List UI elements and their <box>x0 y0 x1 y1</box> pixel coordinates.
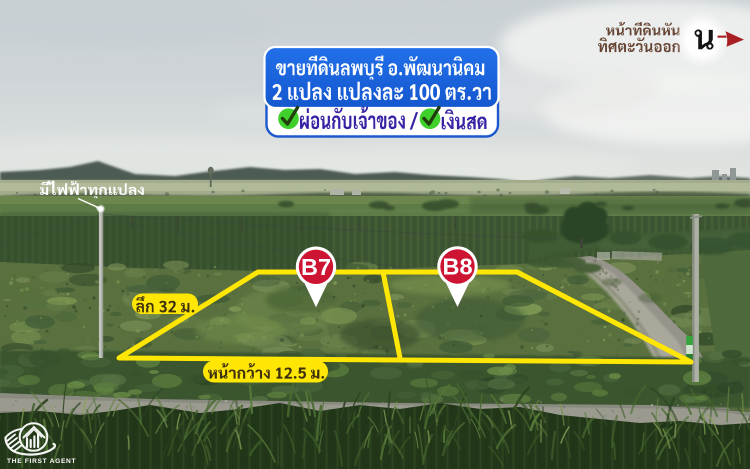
svg-text:B8: B8 <box>442 254 472 280</box>
svg-text:B7: B7 <box>301 254 331 280</box>
svg-text:THE FIRST AGENT: THE FIRST AGENT <box>7 458 76 465</box>
